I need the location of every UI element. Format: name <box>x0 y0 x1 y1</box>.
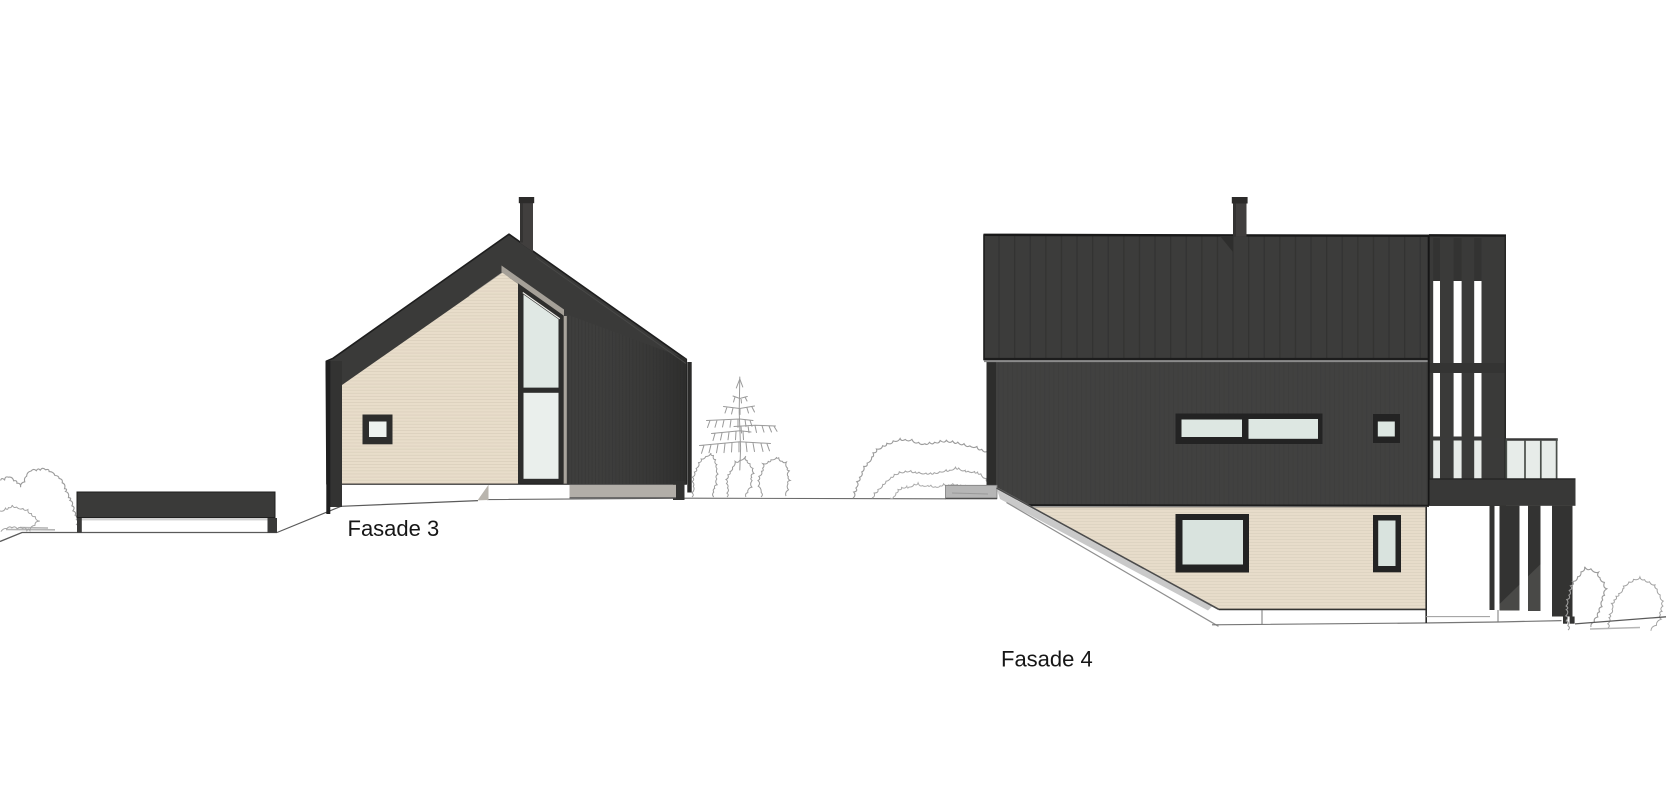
svg-text:Fasade 3: Fasade 3 <box>348 516 440 541</box>
svg-text:Fasade 4: Fasade 4 <box>1001 647 1093 672</box>
